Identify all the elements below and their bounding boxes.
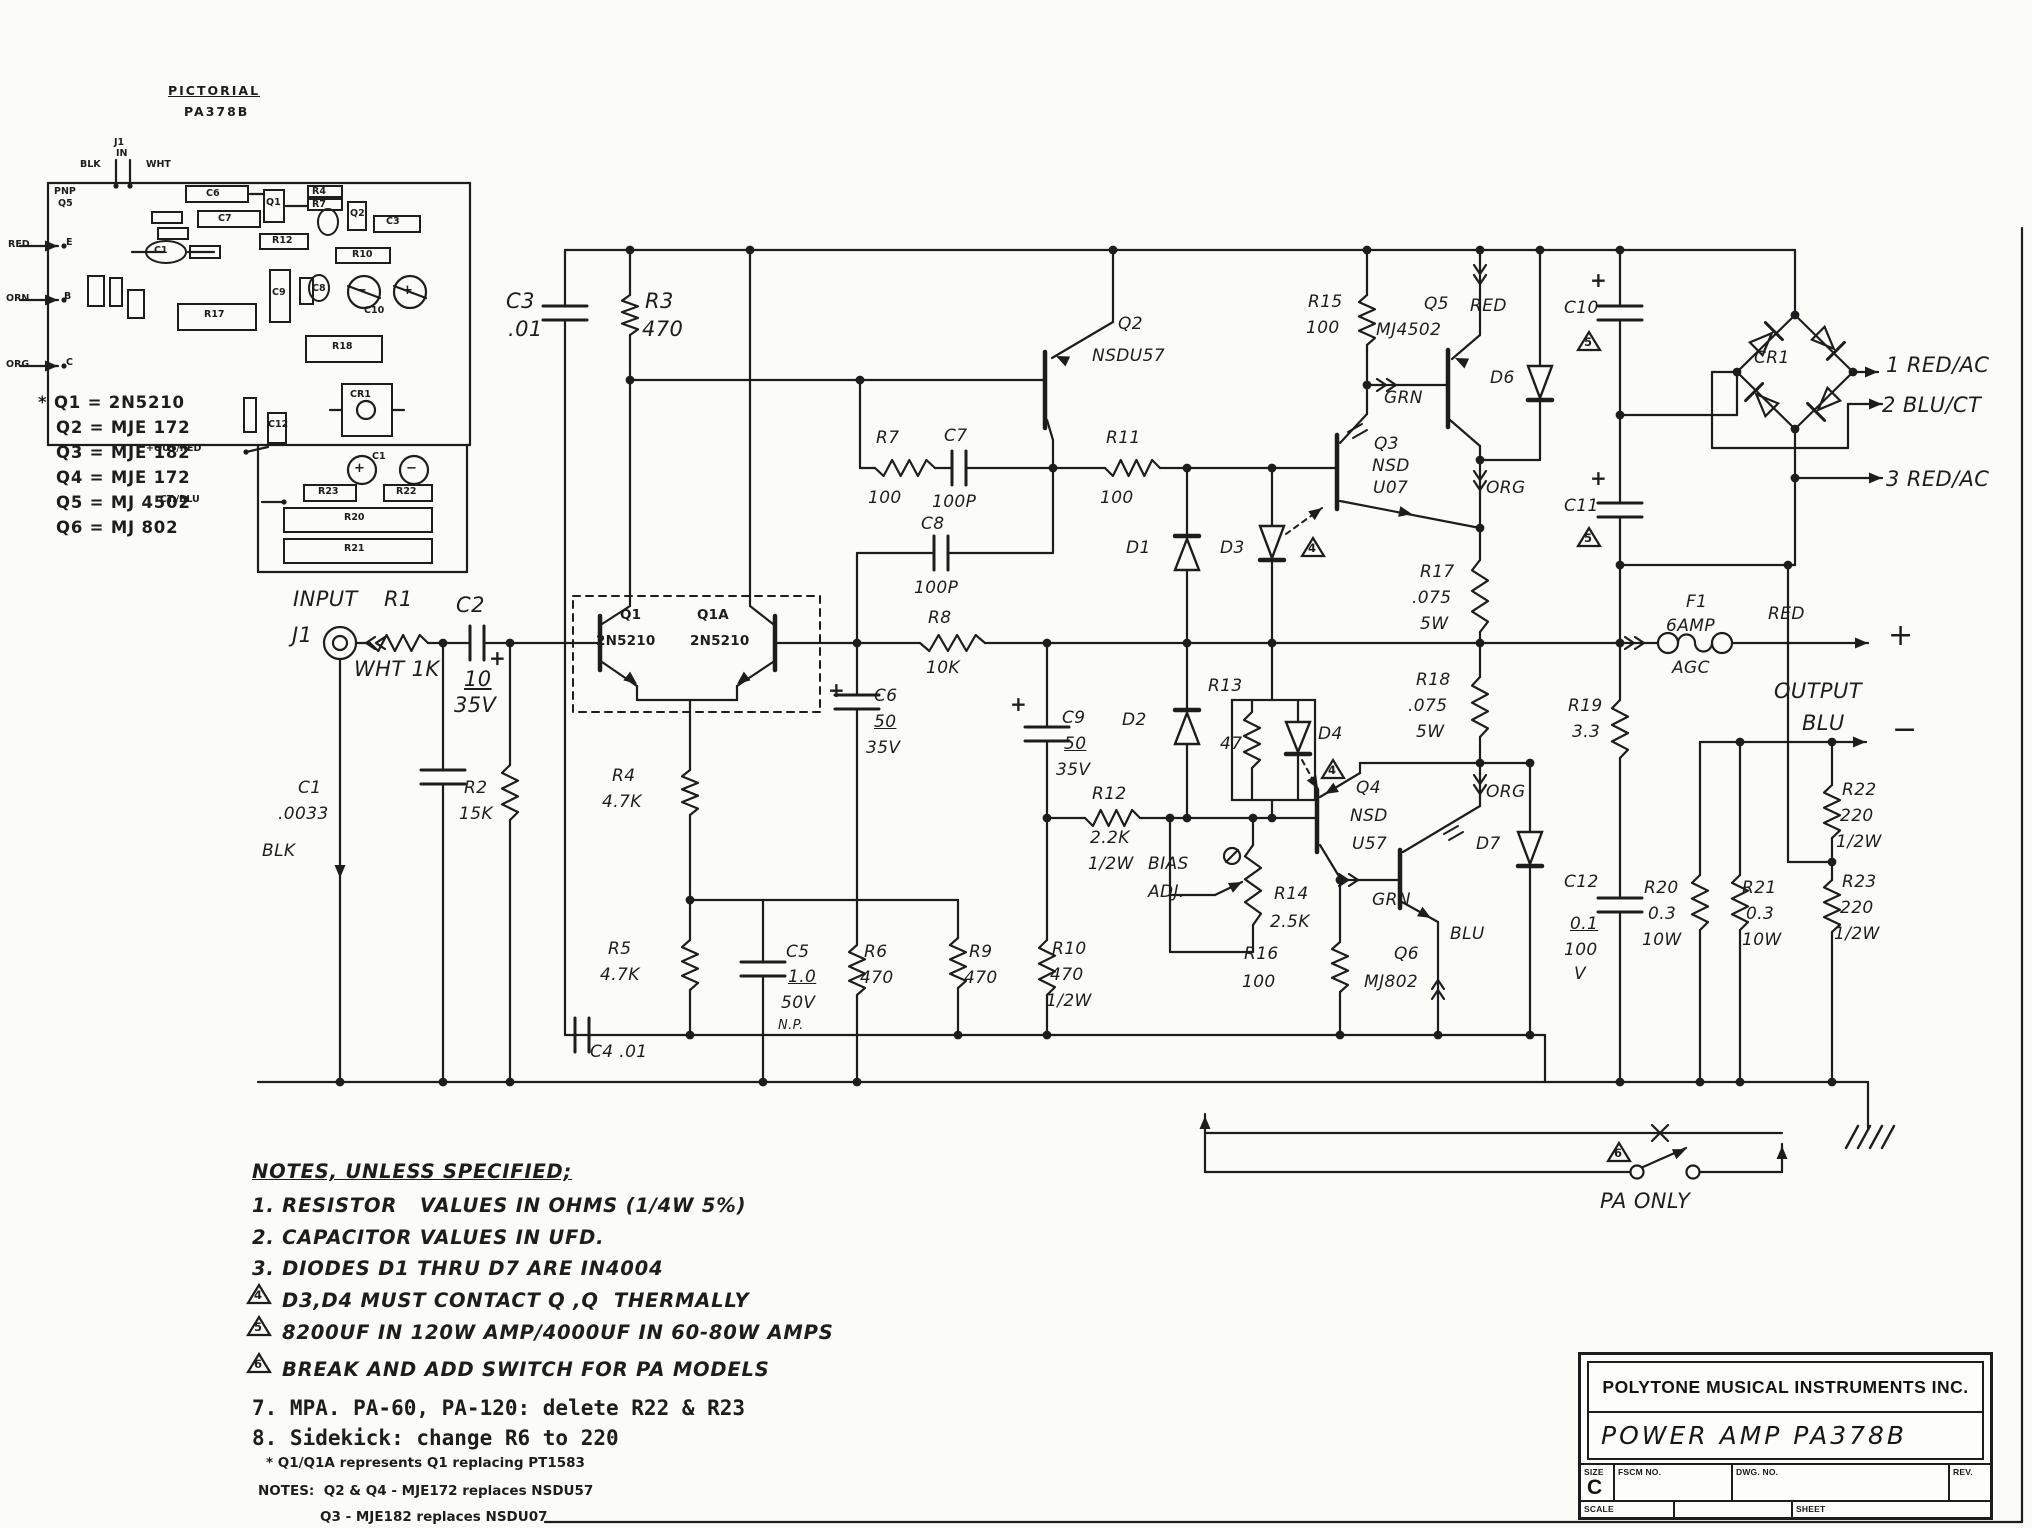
schematic-label: C7 bbox=[944, 428, 968, 446]
schematic-label: C1 bbox=[154, 246, 168, 256]
schematic-label: 1/2W bbox=[1834, 926, 1880, 944]
schematic-label: 4.7K bbox=[600, 967, 640, 985]
schematic-label: R15 bbox=[1308, 294, 1343, 312]
schematic-label: 100P bbox=[932, 494, 976, 512]
schematic-label: 1 RED/AC bbox=[1886, 354, 1989, 376]
schematic-label: 100 bbox=[1564, 942, 1598, 960]
schematic-label: R3 bbox=[645, 290, 674, 312]
schematic-label: 2 BLU/CT bbox=[1882, 394, 1981, 416]
schematic-label: 100P bbox=[914, 580, 958, 598]
fscm-cell: FSCM NO. bbox=[1615, 1465, 1733, 1500]
schematic-label: 1/2W bbox=[1046, 993, 1092, 1011]
schematic-label: 470 bbox=[642, 318, 683, 340]
schematic-label: 5 bbox=[1584, 336, 1592, 348]
schematic-label: 5 bbox=[1584, 532, 1592, 544]
schematic-label: C3 bbox=[386, 217, 400, 227]
schematic-label: BIAS bbox=[1148, 856, 1189, 874]
rev-label: REV. bbox=[1953, 1467, 1973, 1477]
schematic-label: WHT 1K bbox=[354, 658, 440, 680]
schematic-label: C1 bbox=[372, 452, 386, 462]
schematic-label: R22 bbox=[1842, 782, 1877, 800]
schematic-label: 6 bbox=[1614, 1147, 1622, 1159]
schematic-label: J1 bbox=[114, 138, 124, 148]
schematic-label: R12 bbox=[1092, 786, 1127, 804]
schematic-label: R11 bbox=[1106, 430, 1141, 448]
schematic-label: .01 bbox=[508, 318, 543, 340]
schematic-label: C10 bbox=[364, 306, 384, 316]
schematic-label: D4 bbox=[1318, 726, 1343, 744]
schematic-label: .075 bbox=[1412, 590, 1451, 608]
schematic-label: Q2 bbox=[1118, 316, 1143, 334]
schematic-label: 220 bbox=[1840, 900, 1874, 918]
schematic-label: PA378B bbox=[184, 105, 249, 118]
schematic-label: 4 bbox=[1308, 542, 1316, 554]
schematic-label: C4 .01 bbox=[590, 1044, 648, 1062]
schematic-label: R8 bbox=[928, 610, 951, 628]
schematic-label: R12 bbox=[272, 236, 293, 246]
schematic-label: Q2 bbox=[350, 209, 365, 219]
schematic-label: E bbox=[66, 238, 73, 248]
rev-cell: REV. bbox=[1950, 1465, 1990, 1500]
schematic-label: 5 bbox=[254, 1321, 262, 1333]
schematic-label: 1/2W bbox=[1088, 856, 1134, 874]
schematic-label: V bbox=[1574, 966, 1586, 984]
schematic-label: 35V bbox=[1056, 762, 1090, 780]
schematic-label: IN bbox=[116, 149, 128, 159]
schematic-label: C6 bbox=[206, 189, 220, 199]
schematic-label: − bbox=[356, 284, 367, 298]
schematic-label: 2N5210 bbox=[690, 634, 749, 648]
schematic-label: R18 bbox=[1416, 672, 1451, 690]
schematic-label: .075 bbox=[1408, 698, 1447, 716]
schematic-label: 50V bbox=[781, 995, 815, 1013]
schematic-label: 4.7K bbox=[602, 794, 642, 812]
schematic-label: R9 bbox=[969, 944, 992, 962]
schematic-label: Q4 bbox=[1356, 780, 1381, 798]
schematic-label: − bbox=[1892, 714, 1918, 746]
schematic-label: 100 bbox=[1242, 974, 1276, 992]
schematic-label: D3,D4 MUST CONTACT Q ,Q THERMALLY bbox=[282, 1291, 749, 1311]
schematic-label: R1 bbox=[384, 588, 413, 610]
title-block-inner: POLYTONE MUSICAL INSTRUMENTS INC. POWER … bbox=[1587, 1361, 1984, 1460]
schematic-label: R13 bbox=[1208, 678, 1243, 696]
schematic-label: 0.3 bbox=[1746, 906, 1774, 924]
schematic-label: 6AMP bbox=[1666, 618, 1715, 636]
schematic-label: 2N5210 bbox=[596, 634, 655, 648]
schematic-label: 8. Sidekick: change R6 to 220 bbox=[252, 1426, 619, 1450]
schematic-label: 0.1 bbox=[1570, 916, 1598, 934]
schematic-label: 3. DIODES D1 THRU D7 ARE IN4004 bbox=[252, 1259, 663, 1279]
schematic-label: 1/2W bbox=[1836, 834, 1882, 852]
schematic-label: 47 bbox=[1220, 736, 1242, 754]
schematic-label: Q6 = MJ 802 bbox=[56, 519, 178, 536]
schematic-label: + bbox=[1010, 694, 1027, 715]
schematic-label: R18 bbox=[332, 342, 353, 352]
schematic-label: GRN bbox=[1384, 390, 1423, 408]
schematic-label: 6 bbox=[254, 1358, 262, 1370]
sheet-label: SHEET bbox=[1796, 1504, 1825, 1514]
schematic-label: R21 bbox=[344, 544, 365, 554]
schematic-label: + bbox=[828, 680, 845, 701]
schematic-label: INPUT bbox=[293, 588, 358, 610]
schematic-label: R17 bbox=[1420, 564, 1455, 582]
schematic-label: C3 bbox=[506, 290, 535, 312]
schematic-label: BLK bbox=[80, 160, 101, 170]
schematic-label: BLK bbox=[262, 843, 295, 861]
schematic-label: 470 bbox=[964, 970, 998, 988]
schematic-label: 470 bbox=[860, 970, 894, 988]
schematic-label: NSD bbox=[1372, 458, 1410, 476]
schematic-label: * Q1 = 2N5210 bbox=[38, 394, 185, 411]
schematic-label: MJ802 bbox=[1364, 974, 1418, 992]
schematic-label: C9 bbox=[1062, 710, 1086, 728]
dwg-cell: DWG. NO. bbox=[1733, 1465, 1950, 1500]
drawing-title: POWER AMP PA378B bbox=[1589, 1413, 1982, 1458]
schematic-label: R23 bbox=[1842, 874, 1877, 892]
schematic-label: RED bbox=[1768, 606, 1805, 624]
schematic-labels: INPUTR1J1WHT 1KC21035V+C1.0033BLKR215KC3… bbox=[0, 0, 2032, 1528]
schematic-label: + bbox=[1590, 468, 1607, 489]
schematic-label: 5W bbox=[1416, 724, 1444, 742]
schematic-label: NSD bbox=[1350, 808, 1388, 826]
schematic-label: Q2 = MJE 172 bbox=[56, 419, 190, 436]
schematic-label: R20 bbox=[344, 513, 365, 523]
company-name: POLYTONE MUSICAL INSTRUMENTS INC. bbox=[1589, 1363, 1982, 1413]
schematic-label: 100 bbox=[1100, 490, 1134, 508]
schematic-label: 2.5K bbox=[1270, 914, 1310, 932]
schematic-label: Q5 bbox=[58, 199, 73, 209]
title-block-grid2: SCALE SHEET bbox=[1581, 1500, 1990, 1520]
size-value: C bbox=[1587, 1476, 1602, 1500]
schematic-label: U07 bbox=[1373, 480, 1408, 498]
schematic-label: Q4 = MJE 172 bbox=[56, 469, 190, 486]
schematic-label: C9 bbox=[272, 288, 286, 298]
schematic-label: C2 bbox=[456, 594, 485, 616]
schematic-label: D7 bbox=[1476, 836, 1501, 854]
schematic-label: 35V bbox=[866, 740, 900, 758]
schematic-label: ADJ. bbox=[1148, 884, 1185, 902]
schematic-label: C bbox=[66, 358, 73, 368]
schematic-label: R4 bbox=[312, 187, 326, 197]
schematic-label: ORN bbox=[6, 294, 29, 304]
schematic-label: BREAK AND ADD SWITCH FOR PA MODELS bbox=[282, 1360, 770, 1380]
schematic-label: U57 bbox=[1352, 836, 1387, 854]
schematic-label: 50 bbox=[874, 714, 896, 732]
schematic-label: 470 bbox=[1050, 967, 1084, 985]
schematic-label: 35V bbox=[454, 694, 496, 716]
schematic-label: 7. MPA. PA-60, PA-120: delete R22 & R23 bbox=[252, 1396, 745, 1420]
schematic-label: Q6 bbox=[1394, 946, 1419, 964]
schematic-label: R6 bbox=[864, 944, 887, 962]
scale-cell: SCALE bbox=[1581, 1502, 1675, 1520]
schematic-label: R16 bbox=[1244, 946, 1279, 964]
schematic-label: * Q1/Q1A represents Q1 replacing PT1583 bbox=[266, 1456, 585, 1470]
schematic-label: RED bbox=[1470, 298, 1507, 316]
schematic-label: 2.2K bbox=[1090, 830, 1130, 848]
schematic-label: F1 bbox=[1686, 594, 1707, 612]
schematic-label: R7 bbox=[876, 430, 899, 448]
schematic-label: D3 bbox=[1220, 540, 1245, 558]
schematic-label: 10K bbox=[926, 660, 960, 678]
schematic-label: Q3 - MJE182 replaces NSDU07 bbox=[320, 1510, 548, 1524]
schematic-label: 3 RED/AC bbox=[1886, 468, 1989, 490]
schematic-label: Q5 bbox=[1424, 296, 1449, 314]
schematic-label: .0033 bbox=[278, 806, 329, 824]
schematic-label: R10 bbox=[1052, 941, 1087, 959]
scale-label: SCALE bbox=[1584, 1504, 1614, 1514]
schematic-label: Q1 bbox=[620, 608, 641, 622]
schematic-label: R19 bbox=[1568, 698, 1603, 716]
schematic-label: 1. RESISTOR VALUES IN OHMS (1/4W 5%) bbox=[252, 1196, 746, 1216]
schematic-label: 10W bbox=[1642, 932, 1682, 950]
schematic-label: BLU bbox=[1450, 926, 1485, 944]
schematic-label: C5 bbox=[786, 944, 810, 962]
schematic-label: Q3 bbox=[1374, 436, 1399, 454]
schematic-label: R5 bbox=[608, 941, 631, 959]
title-block-grid: SIZE C FSCM NO. DWG. NO. REV. bbox=[1581, 1463, 1990, 1500]
schematic-label: MJ4502 bbox=[1376, 322, 1441, 340]
schematic-label: PA ONLY bbox=[1600, 1190, 1690, 1212]
dwg-label: DWG. NO. bbox=[1736, 1467, 1778, 1477]
schematic-label: CR1 bbox=[1754, 350, 1790, 368]
schematic-label: C12 bbox=[268, 420, 288, 430]
sheet-cell: SHEET bbox=[1793, 1502, 1990, 1520]
schematic-label: WHT bbox=[146, 160, 171, 170]
schematic-label: PICTORIAL bbox=[168, 84, 260, 97]
schematic-label: ORG bbox=[6, 360, 29, 370]
schematic-label: 50 bbox=[1064, 736, 1086, 754]
schematic-label: 10W bbox=[1742, 932, 1782, 950]
schematic-label: PNP bbox=[54, 187, 76, 197]
schematic-label: 3.3 bbox=[1572, 724, 1600, 742]
schematic-label: OUTPUT bbox=[1774, 680, 1862, 702]
schematic-label: C1 bbox=[298, 780, 322, 798]
schematic-label: J1 bbox=[292, 624, 312, 646]
schematic-label: + bbox=[1590, 270, 1607, 291]
schematic-label: R2 bbox=[464, 780, 487, 798]
schematic-label: C8 bbox=[921, 516, 945, 534]
schematic-label: D6 bbox=[1490, 370, 1515, 388]
spare-cell bbox=[1675, 1502, 1793, 1520]
schematic-label: 15K bbox=[459, 806, 493, 824]
schematic-label: 220 bbox=[1840, 808, 1874, 826]
title-block: POLYTONE MUSICAL INSTRUMENTS INC. POWER … bbox=[1578, 1352, 1993, 1520]
schematic-label: NOTES: Q2 & Q4 - MJE172 replaces NSDU57 bbox=[258, 1484, 593, 1498]
schematic-label: NOTES, UNLESS SPECIFIED; bbox=[252, 1162, 572, 1182]
schematic-label: 0.3 bbox=[1648, 906, 1676, 924]
schematic-label: R7 bbox=[312, 200, 326, 210]
fscm-label: FSCM NO. bbox=[1618, 1467, 1661, 1477]
schematic-label: C8 bbox=[312, 284, 326, 294]
schematic-label: B bbox=[64, 292, 71, 302]
schematic-label: R10 bbox=[352, 250, 373, 260]
schematic-label: GRN bbox=[1372, 892, 1411, 910]
schematic-label: 100 bbox=[868, 490, 902, 508]
schematic-label: RED bbox=[8, 240, 30, 250]
schematic-label: C11 bbox=[1564, 498, 1599, 516]
schematic-label: R23 bbox=[318, 487, 339, 497]
schematic-label: C12 bbox=[1564, 874, 1599, 892]
schematic-label: + bbox=[402, 284, 413, 298]
schematic-label: R21 bbox=[1742, 880, 1777, 898]
schematic-label: 10 bbox=[464, 668, 492, 690]
schematic-label: R4 bbox=[612, 768, 635, 786]
schematic-label: R17 bbox=[204, 310, 225, 320]
schematic-label: N.P. bbox=[778, 1019, 804, 1033]
schematic-label: R20 bbox=[1644, 880, 1679, 898]
schematic-label: 5W bbox=[1420, 616, 1448, 634]
schematic-label: D2 bbox=[1122, 712, 1147, 730]
schematic-label: 100 bbox=[1306, 320, 1340, 338]
schematic-label: 2. CAPACITOR VALUES IN UFD. bbox=[252, 1228, 604, 1248]
schematic-label: CR1 bbox=[350, 390, 371, 400]
schematic-label: 4 bbox=[1328, 764, 1336, 776]
schematic-label: AGC bbox=[1672, 660, 1710, 678]
schematic-label: Q5 = MJ 4502 bbox=[56, 494, 191, 511]
schematic-label: + bbox=[489, 648, 506, 669]
schematic-label: NSDU57 bbox=[1092, 348, 1165, 366]
schematic-label: + bbox=[354, 462, 365, 476]
schematic-label: R14 bbox=[1274, 886, 1309, 904]
schematic-label: + bbox=[1888, 620, 1914, 652]
schematic-label: D1 bbox=[1126, 540, 1151, 558]
schematic-label: Q3 = MJE 182 bbox=[56, 444, 190, 461]
schematic-label: 8200UF IN 120W AMP/4000UF IN 60-80W AMPS bbox=[282, 1323, 834, 1343]
schematic-label: − bbox=[406, 462, 417, 476]
schematic-label: ORG bbox=[1486, 784, 1526, 802]
schematic-label: ORG bbox=[1486, 480, 1526, 498]
schematic-page: INPUTR1J1WHT 1KC21035V+C1.0033BLKR215KC3… bbox=[0, 0, 2032, 1528]
schematic-label: Q1A bbox=[697, 608, 729, 622]
schematic-label: C7 bbox=[218, 214, 232, 224]
size-cell: SIZE C bbox=[1581, 1465, 1615, 1500]
schematic-label: Q1 bbox=[266, 198, 281, 208]
schematic-label: 4 bbox=[254, 1289, 262, 1301]
schematic-label: BLU bbox=[1802, 712, 1845, 734]
schematic-label: C6 bbox=[874, 688, 898, 706]
schematic-label: 1.0 bbox=[788, 969, 816, 987]
schematic-label: C10 bbox=[1564, 300, 1599, 318]
schematic-label: R22 bbox=[396, 487, 417, 497]
